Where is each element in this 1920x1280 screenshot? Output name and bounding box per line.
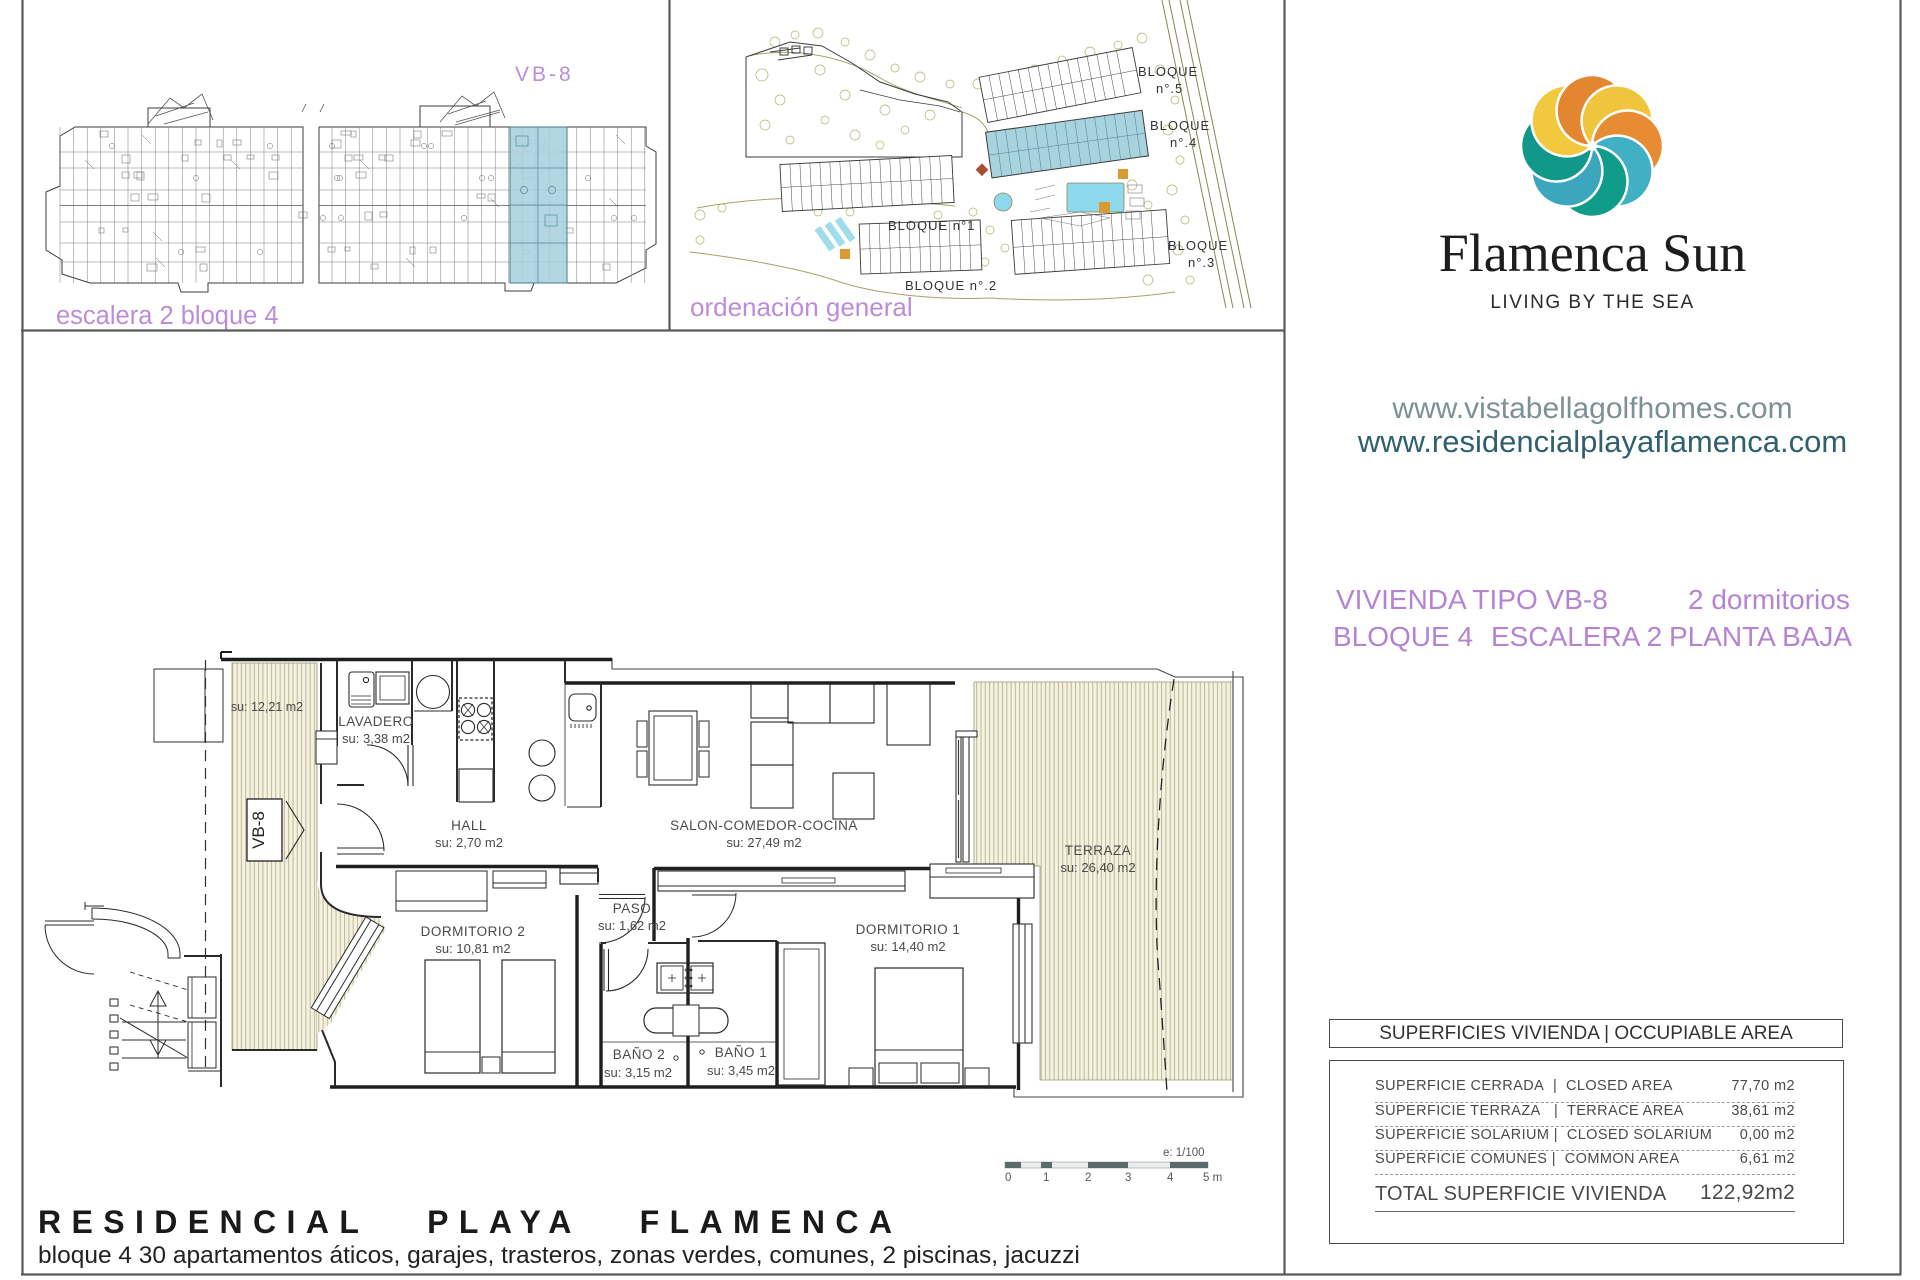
svg-text:su: 3,15 m2: su: 3,15 m2: [604, 1065, 672, 1080]
svg-text:su: 3,45 m2: su: 3,45 m2: [707, 1063, 775, 1078]
svg-text:0: 0: [1005, 1172, 1011, 1184]
svg-text:VB-8: VB-8: [249, 811, 268, 849]
svg-text:BLOQUE: BLOQUE: [1168, 238, 1228, 253]
svg-text:VB-8: VB-8: [515, 63, 574, 86]
svg-text:5 m: 5 m: [1203, 1172, 1222, 1184]
svg-text:DORMITORIO 2: DORMITORIO 2: [421, 924, 526, 939]
svg-text:LAVADERO: LAVADERO: [338, 714, 414, 729]
svg-text:BLOQUE: BLOQUE: [1138, 64, 1198, 79]
svg-text:4: 4: [1167, 1172, 1174, 1184]
svg-text:PASO: PASO: [613, 901, 652, 916]
svg-text:2: 2: [1085, 1172, 1091, 1184]
svg-text:e: 1/100: e: 1/100: [1163, 1147, 1205, 1159]
svg-text:ordenación general: ordenación general: [690, 292, 913, 322]
svg-text:BLOQUE n°1: BLOQUE n°1: [888, 218, 975, 233]
svg-text:BAÑO 1: BAÑO 1: [715, 1045, 768, 1060]
svg-text:su: 26,40 m2: su: 26,40 m2: [1060, 860, 1135, 875]
svg-text:n°.3: n°.3: [1188, 255, 1215, 270]
svg-text:1: 1: [1043, 1172, 1049, 1184]
svg-text:SALON-COMEDOR-COCINA: SALON-COMEDOR-COCINA: [670, 818, 858, 833]
svg-text:DORMITORIO 1: DORMITORIO 1: [856, 922, 961, 937]
svg-text:su: 14,40 m2: su: 14,40 m2: [870, 939, 945, 954]
svg-text:su: 1,62 m2: su: 1,62 m2: [598, 918, 666, 933]
svg-text:n°.4: n°.4: [1170, 135, 1197, 150]
svg-text:BLOQUE: BLOQUE: [1150, 118, 1210, 133]
svg-text:escalera 2 bloque 4: escalera 2 bloque 4: [56, 302, 279, 330]
svg-text:su: 10,81 m2: su: 10,81 m2: [435, 941, 510, 956]
svg-text:BLOQUE n°.2: BLOQUE n°.2: [905, 278, 997, 293]
svg-text:BAÑO 2: BAÑO 2: [613, 1047, 666, 1062]
svg-text:su: 27,49 m2: su: 27,49 m2: [726, 835, 801, 850]
svg-text:TERRAZA: TERRAZA: [1065, 843, 1132, 858]
svg-text:su: 3,38 m2: su: 3,38 m2: [342, 731, 410, 746]
svg-text:su: 2,70 m2: su: 2,70 m2: [435, 835, 503, 850]
svg-text:su: 12,21 m2: su: 12,21 m2: [231, 700, 303, 714]
svg-text:n°.5: n°.5: [1156, 81, 1183, 96]
svg-text:3: 3: [1125, 1172, 1131, 1184]
svg-text:HALL: HALL: [451, 818, 487, 833]
